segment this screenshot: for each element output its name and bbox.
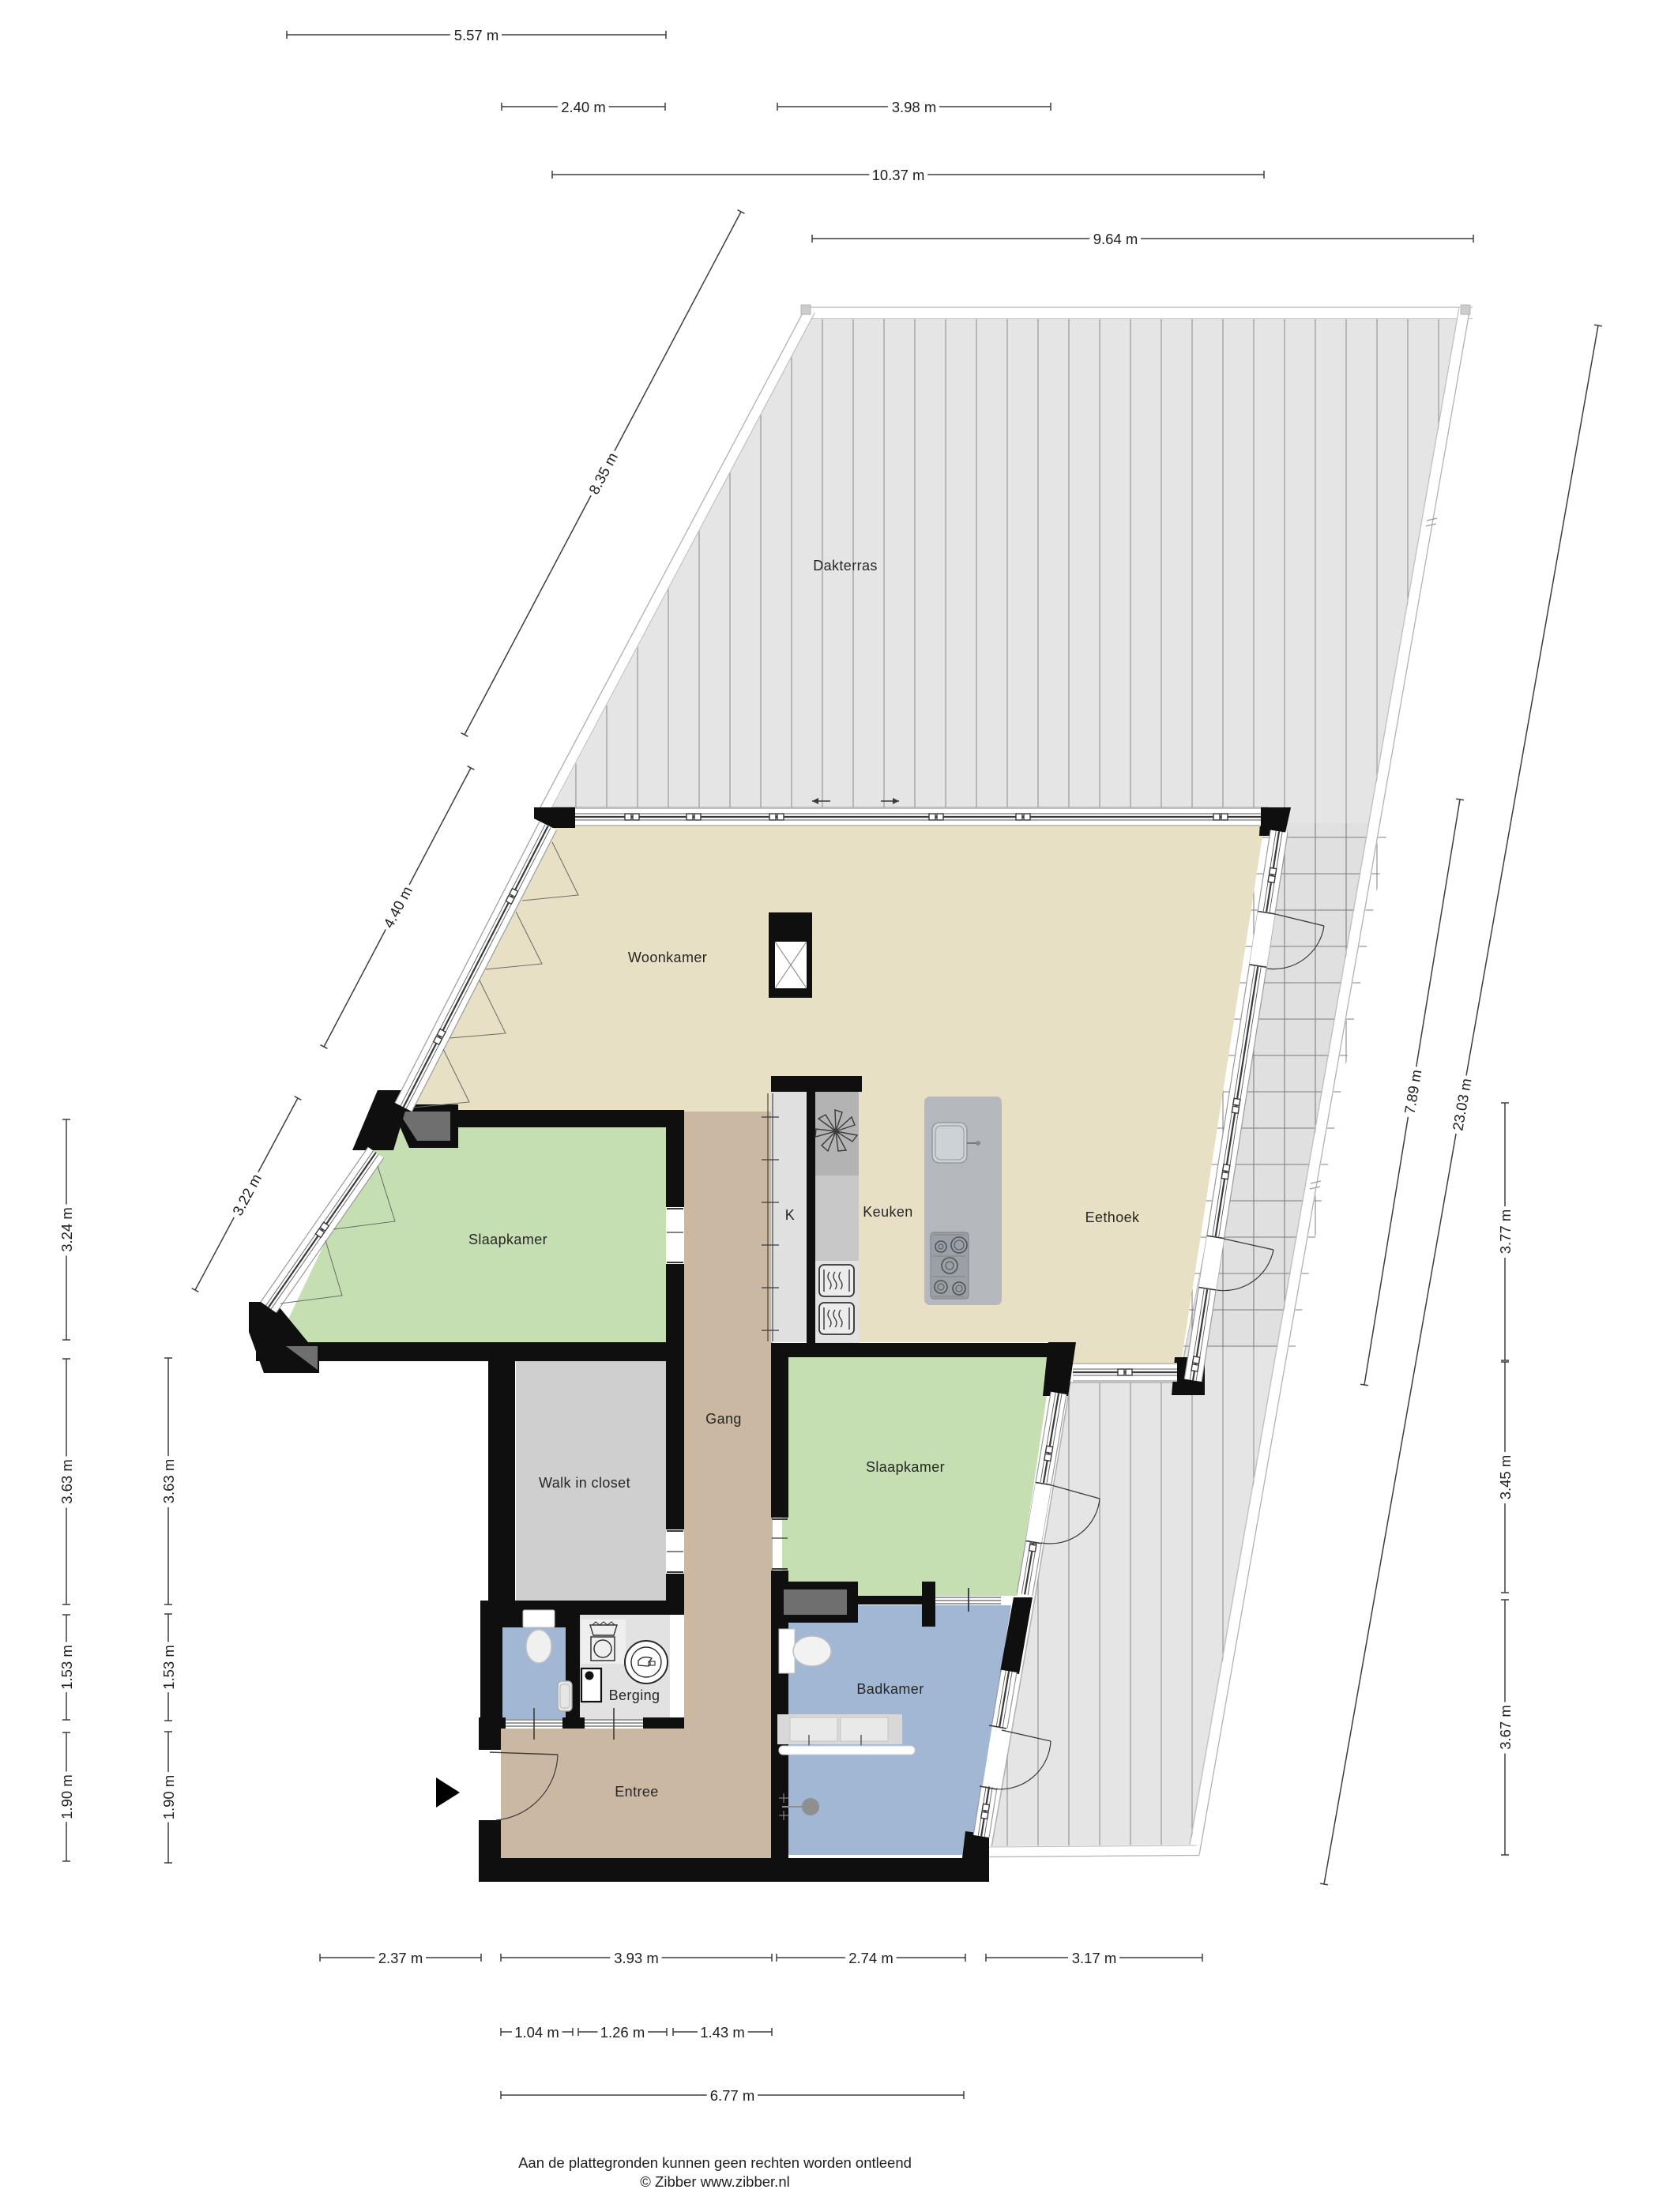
svg-text:6.77 m: 6.77 m	[710, 2087, 755, 2104]
svg-text:Keuken: Keuken	[863, 1204, 912, 1220]
svg-text:3.24 m: 3.24 m	[58, 1207, 75, 1252]
svg-text:3.67 m: 3.67 m	[1497, 1705, 1514, 1750]
svg-text:9.64 m: 9.64 m	[1093, 231, 1138, 247]
svg-text:1.43 m: 1.43 m	[700, 2024, 745, 2041]
svg-text:1.04 m: 1.04 m	[514, 2024, 559, 2041]
svg-text:2.37 m: 2.37 m	[378, 1950, 423, 1966]
svg-text:3.98 m: 3.98 m	[892, 99, 937, 115]
svg-text:Dakterras: Dakterras	[813, 558, 878, 574]
svg-text:1.26 m: 1.26 m	[600, 2024, 645, 2041]
svg-text:Berging: Berging	[609, 1687, 660, 1703]
svg-text:1.53 m: 1.53 m	[58, 1645, 75, 1690]
svg-text:Eethoek: Eethoek	[1085, 1209, 1140, 1225]
svg-text:3.77 m: 3.77 m	[1497, 1209, 1514, 1255]
svg-text:Slaapkamer: Slaapkamer	[468, 1232, 547, 1247]
svg-text:Gang: Gang	[705, 1411, 742, 1427]
svg-text:Slaapkamer: Slaapkamer	[866, 1459, 945, 1475]
svg-text:1.90 m: 1.90 m	[58, 1774, 75, 1819]
svg-text:Aan de plattegronden kunnen ge: Aan de plattegronden kunnen geen rechten…	[518, 2154, 912, 2171]
svg-text:2.40 m: 2.40 m	[561, 99, 606, 115]
svg-text:10.37 m: 10.37 m	[872, 167, 925, 183]
svg-text:Entree: Entree	[615, 1784, 658, 1800]
svg-text:3.93 m: 3.93 m	[614, 1950, 659, 1966]
svg-text:Woonkamer: Woonkamer	[628, 950, 707, 965]
svg-text:K: K	[785, 1207, 795, 1223]
svg-text:3.63 m: 3.63 m	[160, 1459, 177, 1504]
svg-text:Badkamer: Badkamer	[856, 1681, 924, 1697]
svg-text:1.53 m: 1.53 m	[160, 1645, 177, 1690]
svg-text:1.90 m: 1.90 m	[160, 1775, 177, 1820]
svg-text:5.57 m: 5.57 m	[454, 27, 499, 43]
svg-text:Walk in closet: Walk in closet	[539, 1475, 630, 1491]
svg-text:© Zibber www.zibber.nl: © Zibber www.zibber.nl	[640, 2173, 789, 2190]
svg-text:3.45 m: 3.45 m	[1497, 1455, 1514, 1500]
svg-text:3.63 m: 3.63 m	[58, 1459, 75, 1504]
svg-text:2.74 m: 2.74 m	[848, 1950, 893, 1966]
svg-text:3.17 m: 3.17 m	[1072, 1950, 1117, 1966]
